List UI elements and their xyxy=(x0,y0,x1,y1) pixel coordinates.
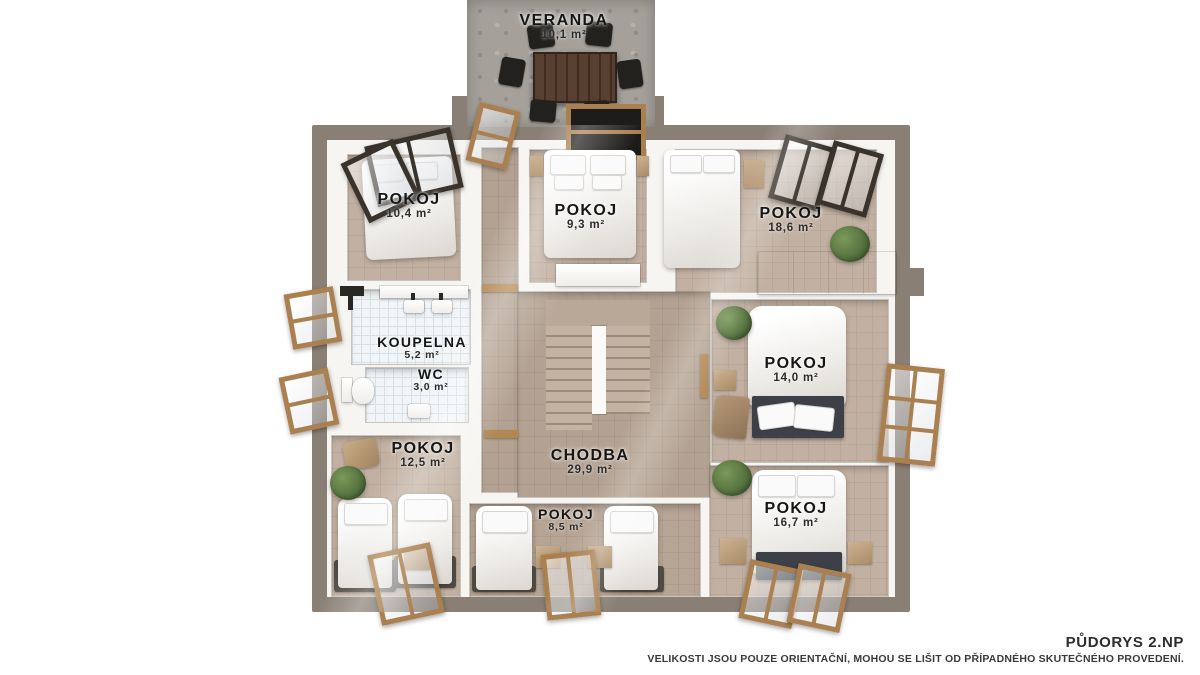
plant xyxy=(716,306,752,340)
label-pokoj-bottom-mid: POKOJ 8,5 m² xyxy=(538,506,594,533)
window-bar xyxy=(904,370,917,460)
stair-divider-wall xyxy=(592,326,606,414)
chair xyxy=(529,99,557,123)
window-bar xyxy=(840,151,860,208)
nightstand xyxy=(637,156,649,176)
window-bar xyxy=(764,568,779,620)
room-name: WC xyxy=(413,366,448,382)
floor-chodba-arm xyxy=(482,148,518,492)
room-area: 18,6 m² xyxy=(759,222,822,234)
room-name: POKOJ xyxy=(538,506,594,522)
pillow xyxy=(703,155,735,173)
toilet-tank xyxy=(342,378,352,402)
room-area: 5,2 m² xyxy=(377,349,467,361)
plant xyxy=(830,226,870,262)
label-pokoj-mid-right: POKOJ 14,0 m² xyxy=(764,355,827,384)
sink xyxy=(408,404,430,418)
pillow xyxy=(670,155,702,173)
roof-window xyxy=(541,549,602,620)
outer-wall-notch xyxy=(908,268,924,296)
pillow xyxy=(758,475,796,497)
pillow xyxy=(554,175,584,190)
faucet xyxy=(411,293,415,300)
pillow xyxy=(344,503,388,525)
threshold xyxy=(700,354,708,398)
pillow xyxy=(590,155,626,175)
storage-box xyxy=(720,538,746,564)
window-bar xyxy=(792,145,812,202)
storage-box xyxy=(848,542,872,564)
casement-window-open xyxy=(877,363,945,467)
room-name: POKOJ xyxy=(759,205,822,223)
threshold xyxy=(482,284,518,292)
armchair xyxy=(712,394,750,439)
room-name: KOUPELNA xyxy=(377,334,467,350)
pillow xyxy=(797,475,835,497)
stair-flight-left xyxy=(546,326,592,430)
room-name: POKOJ xyxy=(764,355,827,373)
plan-title: PŮDORYS 2.NP xyxy=(647,634,1184,651)
window-bar xyxy=(292,312,334,323)
casement-window xyxy=(284,286,343,350)
label-wc: WC 3,0 m² xyxy=(413,366,448,393)
storage-box xyxy=(714,370,736,390)
faucet xyxy=(439,293,443,300)
plan-disclaimer: VELIKOSTI JSOU POUZE ORIENTAČNÍ, MOHOU S… xyxy=(647,653,1184,665)
wardrobe xyxy=(758,252,896,294)
label-pokoj-top-right: POKOJ 18,6 m² xyxy=(759,205,822,234)
label-koupelna: KOUPELNA 5,2 m² xyxy=(377,334,467,361)
door-bar xyxy=(570,130,642,134)
label-pokoj-top-left: POKOJ 10,4 m² xyxy=(377,191,440,220)
label-pokoj-bottom-left: POKOJ 12,5 m² xyxy=(391,440,454,469)
door-bar xyxy=(476,130,510,142)
floorplan-canvas: VERANDA 10,1 m² POKOJ 10,4 m² POKOJ 9,3 … xyxy=(0,0,1200,675)
toilet xyxy=(352,378,374,404)
window-bar xyxy=(812,572,827,624)
plan-footer: PŮDORYS 2.NP VELIKOSTI JSOU POUZE ORIENT… xyxy=(647,634,1184,665)
pillow xyxy=(793,404,835,432)
label-chodba: CHODBA 29,9 m² xyxy=(551,447,630,476)
room-name: POKOJ xyxy=(377,191,440,209)
room-area: 9,3 m² xyxy=(554,219,617,231)
room-area: 3,0 m² xyxy=(413,381,448,393)
room-area: 12,5 m² xyxy=(391,457,454,469)
room-area: 10,4 m² xyxy=(377,208,440,220)
pillow xyxy=(550,155,586,175)
bench xyxy=(556,264,640,286)
room-area: 10,1 m² xyxy=(520,29,609,41)
bathroom-wall-cabinet xyxy=(380,286,468,298)
room-name: POKOJ xyxy=(391,440,454,458)
chair xyxy=(616,58,644,89)
nightstand xyxy=(530,156,543,176)
room-area: 16,7 m² xyxy=(764,517,827,529)
room-name: POKOJ xyxy=(764,500,827,518)
stair-flight-right xyxy=(606,326,650,414)
room-name: POKOJ xyxy=(554,202,617,220)
plant xyxy=(330,466,366,500)
room-name: VERANDA xyxy=(520,12,609,30)
label-pokoj-bottom-right: POKOJ 16,7 m² xyxy=(764,500,827,529)
window-bar xyxy=(566,556,576,614)
roof-window xyxy=(786,563,851,633)
threshold xyxy=(484,430,518,438)
label-veranda: VERANDA 10,1 m² xyxy=(520,12,609,41)
dining-table xyxy=(533,52,617,103)
pillow xyxy=(610,511,654,533)
plant xyxy=(712,460,752,496)
room-name: CHODBA xyxy=(551,447,630,465)
pillow xyxy=(482,511,528,533)
nightstand xyxy=(744,160,764,188)
stair-landing xyxy=(546,300,650,326)
sink xyxy=(404,300,424,313)
pillow xyxy=(592,175,622,190)
pillow xyxy=(404,499,448,521)
room-area: 8,5 m² xyxy=(538,521,594,533)
staircase xyxy=(546,300,650,430)
sink xyxy=(432,300,452,313)
window-bar xyxy=(397,552,414,615)
shower-arm xyxy=(348,294,353,310)
window-bar xyxy=(288,395,330,408)
room-area: 29,9 m² xyxy=(551,464,630,476)
label-pokoj-top-mid: POKOJ 9,3 m² xyxy=(554,202,617,231)
room-area: 14,0 m² xyxy=(764,372,827,384)
chair xyxy=(498,56,526,88)
